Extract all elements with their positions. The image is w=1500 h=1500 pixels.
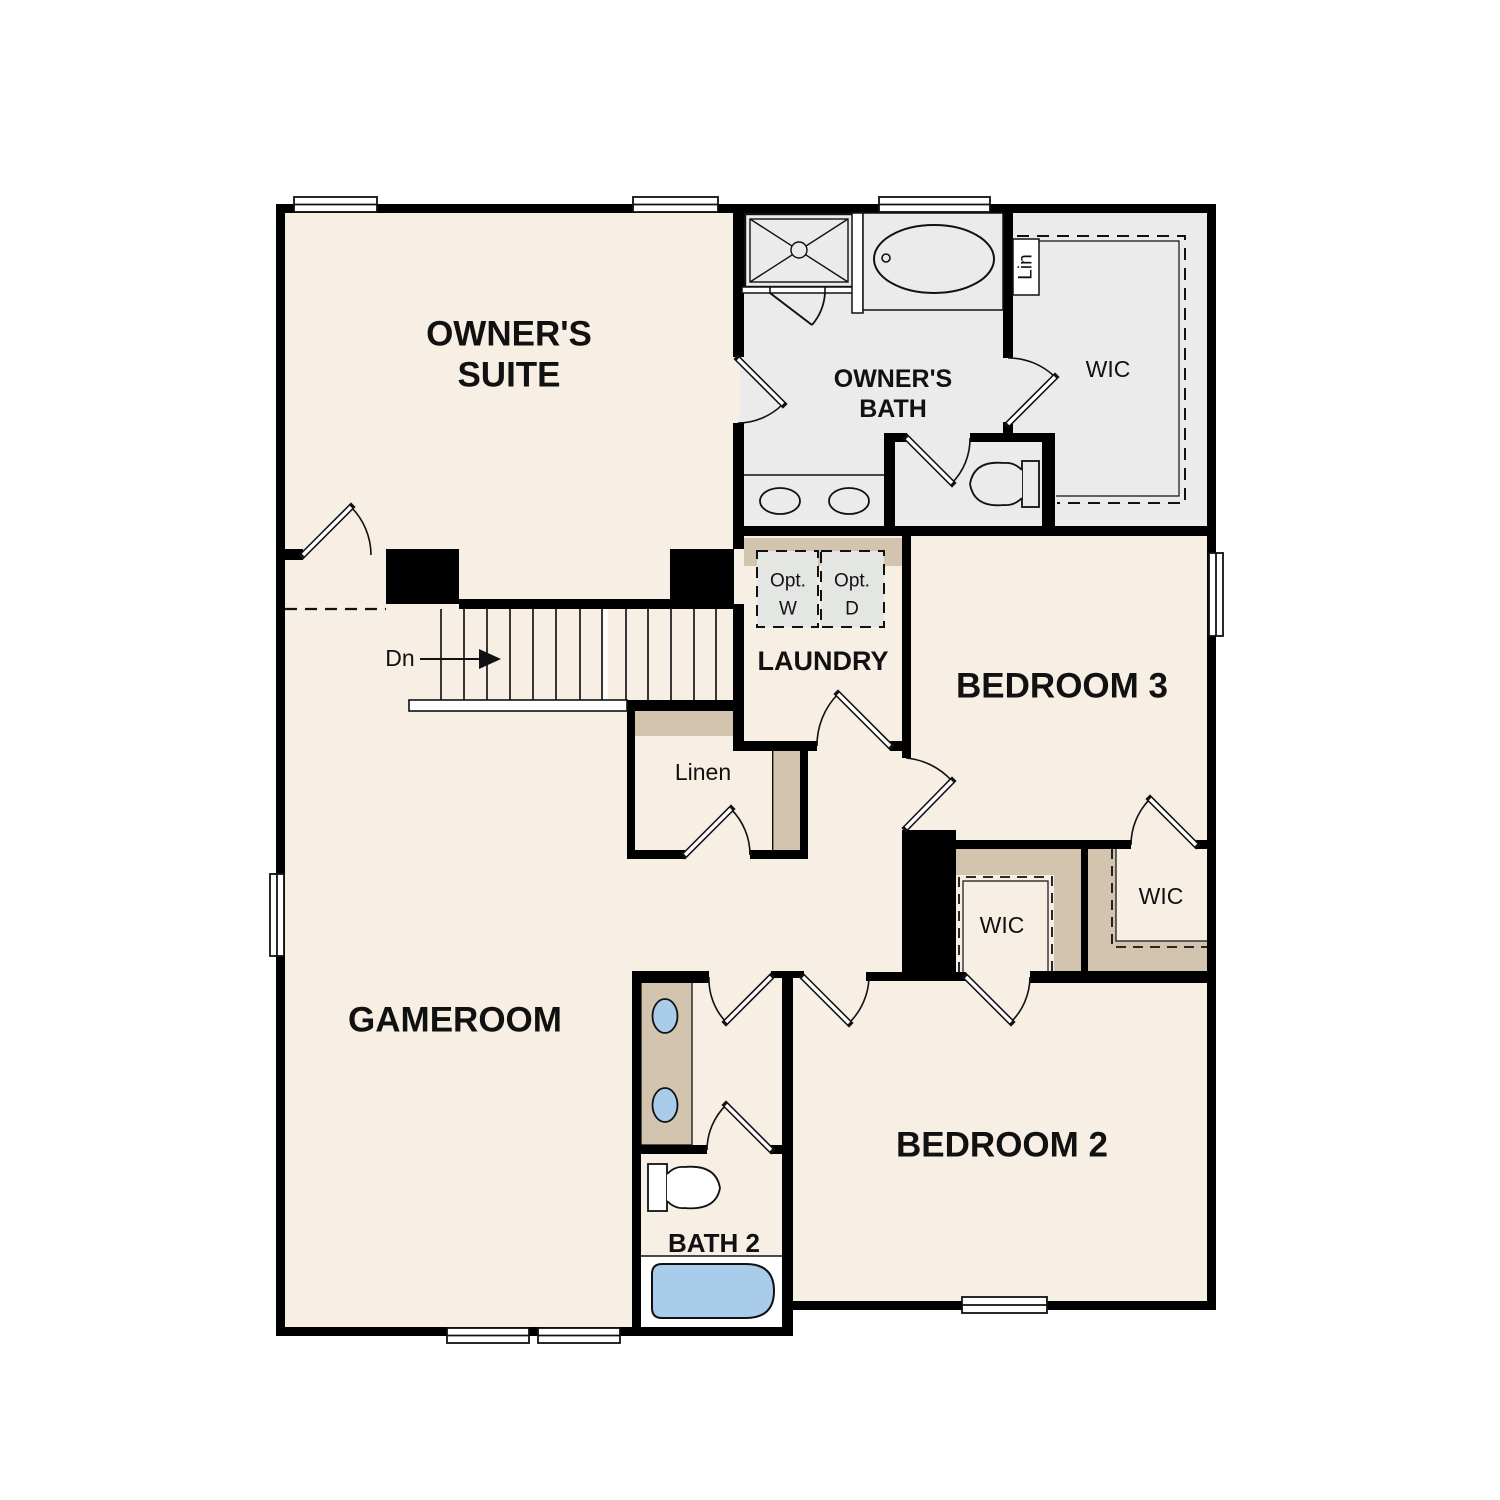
svg-text:BATH: BATH bbox=[859, 395, 927, 423]
svg-text:Lin: Lin bbox=[1016, 254, 1037, 279]
svg-text:Opt.: Opt. bbox=[770, 571, 806, 592]
svg-text:BEDROOM 2: BEDROOM 2 bbox=[896, 1126, 1108, 1165]
svg-text:OWNER'S: OWNER'S bbox=[426, 315, 592, 354]
svg-text:LAUNDRY: LAUNDRY bbox=[758, 646, 889, 676]
svg-text:WIC: WIC bbox=[1086, 356, 1131, 382]
svg-text:SUITE: SUITE bbox=[457, 356, 560, 395]
svg-text:W: W bbox=[779, 599, 797, 620]
svg-text:Linen: Linen bbox=[675, 759, 731, 785]
svg-text:BEDROOM 3: BEDROOM 3 bbox=[956, 667, 1168, 706]
svg-text:Opt.: Opt. bbox=[834, 571, 870, 592]
svg-text:GAMEROOM: GAMEROOM bbox=[348, 1001, 562, 1040]
svg-text:BATH 2: BATH 2 bbox=[668, 1228, 760, 1258]
svg-text:OWNER'S: OWNER'S bbox=[834, 365, 952, 393]
svg-text:Dn: Dn bbox=[385, 645, 414, 671]
svg-text:WIC: WIC bbox=[980, 912, 1025, 938]
svg-text:WIC: WIC bbox=[1139, 883, 1184, 909]
svg-text:D: D bbox=[845, 599, 859, 620]
